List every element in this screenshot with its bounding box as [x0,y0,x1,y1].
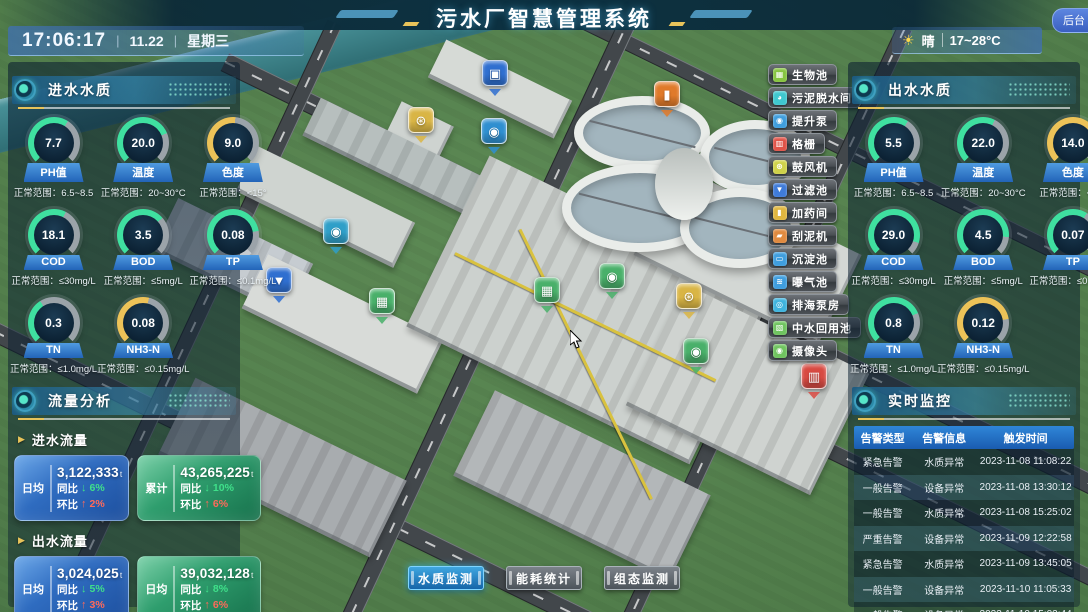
gauge-ring: 7.7 [28,117,80,169]
alarm-table: 告警类型 告警信息 触发时间 紧急告警 水质异常 2023-11-08 11:0… [854,426,1074,612]
outlet-gauge-grid: 5.5 PH值 正常范围：6.5~8.5 22.0 温度 正常范围：20~30°… [848,109,1080,375]
gauge-range: 正常范围：≤0.1mg/L [1029,273,1088,287]
marker-icon: ◉ [323,218,349,244]
alarm-info: 设备异常 [911,607,977,612]
alarm-info: 水质异常 [911,454,977,469]
gauge-label: TP [1043,255,1088,270]
flow-card: 日均 3,024,025t 同比↓5% 环比↑3% [14,556,129,612]
mom-label: 环比 [180,497,201,512]
gauge-value: 7.7 [34,123,74,163]
arrow-up-icon: ↑ [81,599,87,611]
gauge-ring: 22.0 [957,117,1009,169]
section-underline [858,418,1070,420]
backend-button[interactable]: 后台 [1052,8,1088,33]
arrow-up-icon: ↑ [204,599,210,611]
section-title: 流量分析 [48,391,112,411]
gauge: 0.8 TN 正常范围：≤1.0mg/L [850,297,937,375]
gauge-label: NH3-N [953,343,1013,358]
gauge-value: 20.0 [123,123,163,163]
mom-label: 环比 [180,598,201,612]
triangle-bullet-icon: ▶ [18,434,26,445]
mom-label: 环比 [57,598,78,612]
marker-icon: ⊛ [408,107,434,133]
gauge: 3.5 BOD 正常范围：≤5mg/L [97,209,189,287]
gauge-range: 正常范围：≤0.1mg/L [189,273,276,287]
gauge-ring: 0.08 [117,297,169,349]
alarm-type: 紧急告警 [854,454,911,469]
gauge-range: 正常范围：≤0.15mg/L [937,361,1029,375]
marker-icon: ▮ [654,81,680,107]
marker-pin [489,89,501,96]
clock-separator: | [174,33,177,48]
flow-card-value: 3,024,025t [57,566,122,581]
gauge-label: 色度 [203,163,263,182]
marker-icon: ▦ [369,288,395,314]
gauge-label: TP [203,255,263,270]
alarm-col-time: 触发时间 [977,430,1074,446]
flow-card-tag: 日均 [21,581,45,597]
alarm-type: 一般告警 [854,480,911,495]
yoy-label: 同比 [57,582,78,597]
marker-pin [690,367,702,374]
dot-grid-ornament [1008,82,1070,98]
mom-value: 2% [90,498,105,510]
alarm-row[interactable]: 一般告警 设备异常 2023-11-08 13:30:12 [854,475,1074,501]
alarm-row[interactable]: 紧急告警 水质异常 2023-11-08 11:08:22 [854,449,1074,475]
bottom-tab[interactable]: 组态监测 [604,566,680,590]
marker-pin [415,136,427,143]
gauge-value: 0.07 [1053,215,1088,255]
alarm-row[interactable]: 一般告警 水质异常 2023-11-08 15:25:02 [854,500,1074,526]
gauge-label: NH3-N [113,343,173,358]
arrow-up-icon: ↑ [81,498,87,510]
inlet-flow-cards: 日均 3,122,333t 同比↓6% 环比↑2% 累计 43,265,225t… [8,453,240,521]
facility-label: 污泥脱水间 [792,90,852,106]
gauge-value: 0.08 [213,215,253,255]
gauge-label: PH值 [24,163,84,182]
gauge-value: 14.0 [1053,123,1088,163]
facility-button[interactable]: ⊛ 鼓风机 [768,156,837,177]
central-hub-building [655,148,713,220]
flow-card-unit: t [251,570,254,580]
marker-pin [606,292,618,299]
gauge: 0.08 TP 正常范围：≤0.1mg/L [189,209,276,287]
marker-icon: ◉ [599,263,625,289]
facility-label: 提升泵 [792,113,828,129]
marker-blower-b[interactable]: ⊛ [675,283,703,319]
page-title: 污水厂智慧管理系统 [0,3,1088,33]
alarm-type: 一般告警 [854,582,911,597]
inlet-gauge-grid: 7.7 PH值 正常范围：6.5~8.5 20.0 温度 正常范围：20~30°… [8,109,240,375]
gauge: 9.0 色度 正常范围：<15° [189,117,276,199]
clock-weekday: 星期三 [187,31,229,51]
facility-icon: ▭ [773,252,787,266]
gauge-label: 温度 [953,163,1013,182]
facility-label: 沉淀池 [792,251,828,267]
flow-card: 日均 39,032,128t 同比↓8% 环比↑6% [137,556,260,612]
facility-button[interactable]: ◉ 摄像头 [768,340,837,361]
marker-icon: ▦ [534,277,560,303]
marker-pin [488,147,500,154]
gauge-label: 温度 [113,163,173,182]
facility-icon: ◎ [773,298,787,312]
flow-card-value: 3,122,333t [57,465,122,480]
gauge-range: 正常范围：6.5~8.5 [14,185,93,199]
gauge-label: COD [864,255,924,270]
gauge-ring: 0.08 [207,209,259,261]
gauge: 18.1 COD 正常范围：≤30mg/L [10,209,97,287]
gauge-ring: 0.07 [1047,209,1088,261]
facility-icon: ▦ [773,68,787,82]
gauge-value: 5.5 [874,123,914,163]
gauge: 4.5 BOD 正常范围：≤5mg/L [937,209,1029,287]
facility-icon: ▰ [773,229,787,243]
marker-icon: ▣ [482,60,508,86]
gauge-range: 正常范围：20~30°C [941,185,1026,199]
gauge-value: 0.3 [34,303,74,343]
yoy-value: 6% [90,482,105,494]
facility-button[interactable]: ≋ 曝气池 [768,271,837,292]
mom-value: 6% [213,599,228,611]
flow-card-unit: t [120,570,123,580]
dashboard: ▣ ⊛ ◉ ▮ ◉ ▼ ▦ ▦ ◉ ⊛ ◉ ▥ 污水厂智慧管理 [0,0,1088,612]
gauge-ring: 0.8 [868,297,920,349]
facility-icon: ▮ [773,206,787,220]
facility-button[interactable]: ▦ 生物池 [768,64,837,85]
dot-grid-ornament [1008,393,1070,409]
arrow-down-icon: ↓ [81,583,87,595]
yoy-label: 同比 [57,481,78,496]
flow-card-tag: 日均 [21,480,45,496]
gauge-range: 正常范围：≤30mg/L [851,273,935,287]
gauge-range: 正常范围：≤1.0mg/L [10,361,97,375]
flow-card-tag: 累计 [144,480,168,496]
gauge-ring: 0.12 [957,297,1009,349]
facility-label: 格栅 [792,136,816,152]
gauge-range: 正常范围：<15° [1039,185,1088,199]
facility-icon: ◉ [773,114,787,128]
gauge: 22.0 温度 正常范围：20~30°C [937,117,1029,199]
flow-card-unit: t [120,469,123,479]
marker-pin [273,296,285,303]
outlet-panel: 出水水质 5.5 PH值 正常范围：6.5~8.5 22.0 温度 正常范围：2… [848,62,1080,607]
marker-icon: ◉ [481,118,507,144]
alarm-time: 2023-11-08 15:25:02 [977,507,1074,518]
mom-value: 6% [213,498,228,510]
marker-camera-a[interactable]: ◉ [598,263,626,299]
marker-icon: ◉ [683,338,709,364]
marker-blower-a[interactable]: ⊛ [407,107,435,143]
dot-grid-ornament [168,393,230,409]
flow-card-value: 39,032,128t [180,566,253,581]
gauge-label: PH值 [864,163,924,182]
gauge-label: TN [864,343,924,358]
inlet-panel: 进水水质 7.7 PH值 正常范围：6.5~8.5 20.0 温度 正常范围：2… [8,62,240,607]
facility-icon: ▧ [773,321,787,335]
marker-pin [661,110,673,117]
marker-camera-b[interactable]: ◉ [682,338,710,374]
section-underline [18,418,230,420]
inlet-flow-label: ▶ 进水流量 [18,430,240,449]
alarm-type: 一般告警 [854,607,911,612]
alarm-row[interactable]: 严重告警 设备异常 2023-11-09 12:22:58 [854,526,1074,552]
gauge-ring: 9.0 [207,117,259,169]
dot-grid-ornament [168,82,230,98]
alarm-rows: 紧急告警 水质异常 2023-11-08 11:08:22 一般告警 设备异常 … [854,449,1074,612]
clock-date: 11.22 [129,33,163,49]
gauge-value: 0.08 [123,303,163,343]
alarm-type: 紧急告警 [854,556,911,571]
gauge: 0.12 NH3-N 正常范围：≤0.15mg/L [937,297,1029,375]
facility-button[interactable]: ◎ 排海泵房 [768,294,849,315]
gauge-ring: 3.5 [117,209,169,261]
facility-icon: ⊛ [773,160,787,174]
arrow-down-icon: ↓ [204,482,210,494]
gauge-value: 3.5 [123,215,163,255]
gauge-value: 4.5 [963,215,1003,255]
alarm-info: 设备异常 [911,582,977,597]
section-title: 进水水质 [48,80,112,100]
section-header-inlet-quality: 进水水质 [12,76,236,104]
facility-button[interactable]: ▰ 刮泥机 [768,225,837,246]
yoy-label: 同比 [180,582,201,597]
yoy-label: 同比 [180,481,201,496]
section-header-monitor: 实时监控 [852,387,1076,415]
marker-icon: ▥ [801,363,827,389]
weather-range: 17~28°C [950,33,1001,48]
marker-pin [683,312,695,319]
marker-pump-b[interactable]: ◉ [322,218,350,254]
section-orb-icon [854,390,876,412]
marker-pool-b[interactable]: ▦ [533,277,561,313]
clock-separator: | [116,33,119,48]
facility-label: 过滤池 [792,182,828,198]
facility-icon: ◉ [773,344,787,358]
gauge-range: 正常范围：≤30mg/L [11,273,95,287]
arrow-up-icon: ↑ [204,498,210,510]
alarm-row[interactable]: 一般告警 设备异常 2023-11-10 15:02:44 [854,602,1074,612]
gauge: 14.0 色度 正常范围：<15° [1029,117,1088,199]
gauge: 7.7 PH值 正常范围：6.5~8.5 [10,117,97,199]
flow-card-value: 43,265,225t [180,465,253,480]
alarm-col-info: 告警信息 [911,430,977,446]
section-orb-icon [14,390,36,412]
facility-icon: ≋ [773,275,787,289]
arrow-down-icon: ↓ [204,583,210,595]
alarm-time: 2023-11-09 12:22:58 [977,533,1074,544]
alarm-type: 一般告警 [854,505,911,520]
section-header-flow: 流量分析 [12,387,236,415]
gauge: 0.08 NH3-N 正常范围：≤0.15mg/L [97,297,189,375]
mouse-cursor [570,330,584,350]
gauge-range: 正常范围：<15° [199,185,266,199]
gauge: 5.5 PH值 正常范围：6.5~8.5 [850,117,937,199]
facility-label: 刮泥机 [792,228,828,244]
marker-grid[interactable]: ▥ [800,363,828,399]
marker-pin [541,306,553,313]
gauge-label: BOD [113,255,173,270]
gauge-range: 正常范围：≤5mg/L [944,273,1023,287]
facility-button[interactable]: ▥ 格栅 [768,133,825,154]
alarm-table-header: 告警类型 告警信息 触发时间 [854,426,1074,449]
facility-button[interactable]: ▼ 过滤池 [768,179,837,200]
alarm-col-type: 告警类型 [854,430,911,446]
outlet-flow-cards: 日均 3,024,025t 同比↓5% 环比↑3% 日均 39,032,128t… [8,554,240,612]
gauge-value: 9.0 [213,123,253,163]
gauge-value: 0.8 [874,303,914,343]
sun-icon: ☀ [902,32,915,49]
alarm-info: 水质异常 [911,556,977,571]
section-orb-icon [14,79,36,101]
gauge: 0.07 TP 正常范围：≤0.1mg/L [1029,209,1088,287]
yoy-value: 5% [90,583,105,595]
section-title: 出水水质 [888,80,952,100]
gauge-ring: 29.0 [868,209,920,261]
facility-icon: ▼ [773,183,787,197]
gauge: 29.0 COD 正常范围：≤30mg/L [850,209,937,287]
gauge-ring: 0.3 [28,297,80,349]
marker-icon: ⊛ [676,283,702,309]
gauge-value: 29.0 [874,215,914,255]
marker-pin [376,317,388,324]
weather-divider [942,33,943,47]
section-header-outlet-quality: 出水水质 [852,76,1076,104]
gauge-range: 正常范围：≤1.0mg/L [850,361,937,375]
yoy-value: 8% [213,583,228,595]
mom-value: 3% [90,599,105,611]
gauge-label: COD [24,255,84,270]
outlet-flow-label: ▶ 出水流量 [18,531,240,550]
facility-label: 加药间 [792,205,828,221]
gauge-value: 22.0 [963,123,1003,163]
facility-button[interactable]: ◉ 提升泵 [768,110,837,131]
facility-button[interactable]: ▮ 加药间 [768,202,837,223]
triangle-bullet-icon: ▶ [18,535,26,546]
alarm-info: 设备异常 [911,480,977,495]
flow-card: 累计 43,265,225t 同比↓10% 环比↑6% [137,455,260,521]
gauge-value: 18.1 [34,215,74,255]
gauge-label: TN [24,343,84,358]
gauge-value: 0.12 [963,303,1003,343]
mom-label: 环比 [57,497,78,512]
flow-card: 日均 3,122,333t 同比↓6% 环比↑2% [14,455,129,521]
facility-label: 鼓风机 [792,159,828,175]
section-orb-icon [854,79,876,101]
weather-condition: 晴 [922,31,935,50]
facility-label: 摄像头 [792,343,828,359]
flow-card-unit: t [251,469,254,479]
facility-label: 排海泵房 [792,297,840,313]
alarm-info: 设备异常 [911,531,977,546]
bottom-tab[interactable]: 能耗统计 [506,566,582,590]
alarm-time: 2023-11-08 13:30:12 [977,482,1074,493]
alarm-row[interactable]: 紧急告警 水质异常 2023-11-09 13:45:05 [854,551,1074,577]
marker-scraper[interactable]: ▮ [653,81,681,117]
gauge: 0.3 TN 正常范围：≤1.0mg/L [10,297,97,375]
alarm-time: 2023-11-09 13:45:05 [977,558,1074,569]
alarm-time: 2023-11-08 11:08:22 [977,456,1074,467]
bottom-tab-bar: 水质监测能耗统计组态监测 [408,566,680,590]
marker-pool-a[interactable]: ▦ [368,288,396,324]
gauge-label: 色度 [1043,163,1088,182]
facility-icon: ◕ [773,91,787,105]
gauge-ring: 20.0 [117,117,169,169]
alarm-info: 水质异常 [911,505,977,520]
gauge-range: 正常范围：20~30°C [101,185,186,199]
marker-pin [808,392,820,399]
alarm-row[interactable]: 一般告警 设备异常 2023-11-10 11:05:33 [854,577,1074,603]
gauge-ring: 14.0 [1047,117,1088,169]
facility-button[interactable]: ▭ 沉淀池 [768,248,837,269]
flow-card-tag: 日均 [144,581,168,597]
arrow-down-icon: ↓ [81,482,87,494]
marker-pin [330,247,342,254]
alarm-time: 2023-11-10 11:05:33 [977,584,1074,595]
bottom-tab[interactable]: 水质监测 [408,566,484,590]
gauge-ring: 5.5 [868,117,920,169]
section-title: 实时监控 [888,391,952,411]
gauge-ring: 18.1 [28,209,80,261]
gauge-range: 正常范围：≤0.15mg/L [97,361,189,375]
facility-label: 曝气池 [792,274,828,290]
marker-pump-a[interactable]: ◉ [480,118,508,154]
gauge-range: 正常范围：≤5mg/L [104,273,183,287]
facility-icon: ▥ [773,137,787,151]
marker-monitor[interactable]: ▣ [481,60,509,96]
alarm-type: 严重告警 [854,531,911,546]
gauge-ring: 4.5 [957,209,1009,261]
gauge: 20.0 温度 正常范围：20~30°C [97,117,189,199]
facility-label: 生物池 [792,67,828,83]
facility-label: 中水回用池 [792,320,852,336]
yoy-value: 10% [213,482,234,494]
gauge-range: 正常范围：6.5~8.5 [854,185,933,199]
gauge-label: BOD [953,255,1013,270]
